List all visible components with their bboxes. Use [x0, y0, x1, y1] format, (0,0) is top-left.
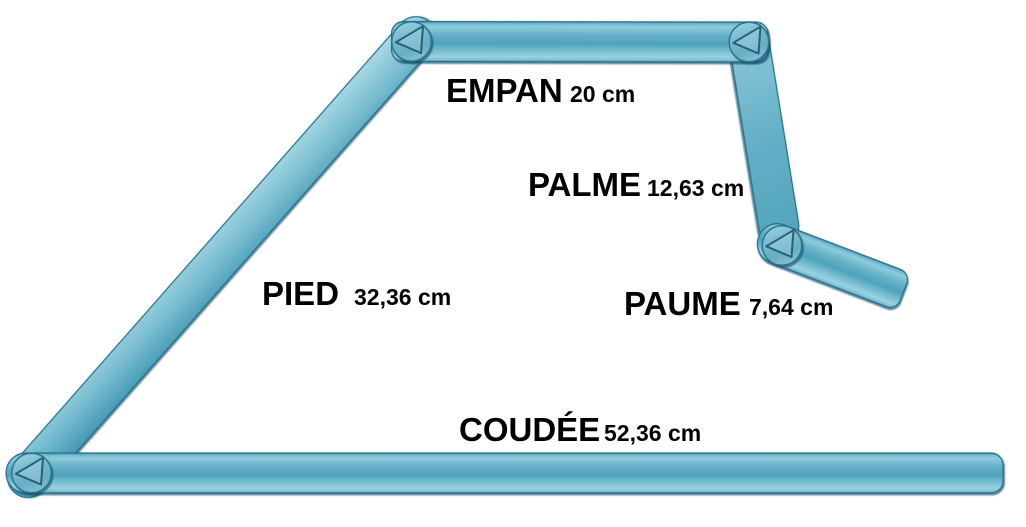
svg-text:PALME: PALME — [528, 166, 641, 203]
svg-text:PAUME: PAUME — [624, 285, 741, 322]
svg-text:EMPAN: EMPAN — [446, 72, 563, 109]
svg-text:PIED: PIED — [262, 275, 339, 312]
svg-text:32,36 cm: 32,36 cm — [354, 284, 451, 310]
svg-text:7,64 cm: 7,64 cm — [749, 294, 833, 320]
svg-text:52,36 cm: 52,36 cm — [604, 420, 701, 446]
svg-text:COUDÉE: COUDÉE — [459, 411, 600, 448]
svg-text:12,63 cm: 12,63 cm — [647, 175, 744, 201]
svg-text:20 cm: 20 cm — [570, 81, 635, 107]
